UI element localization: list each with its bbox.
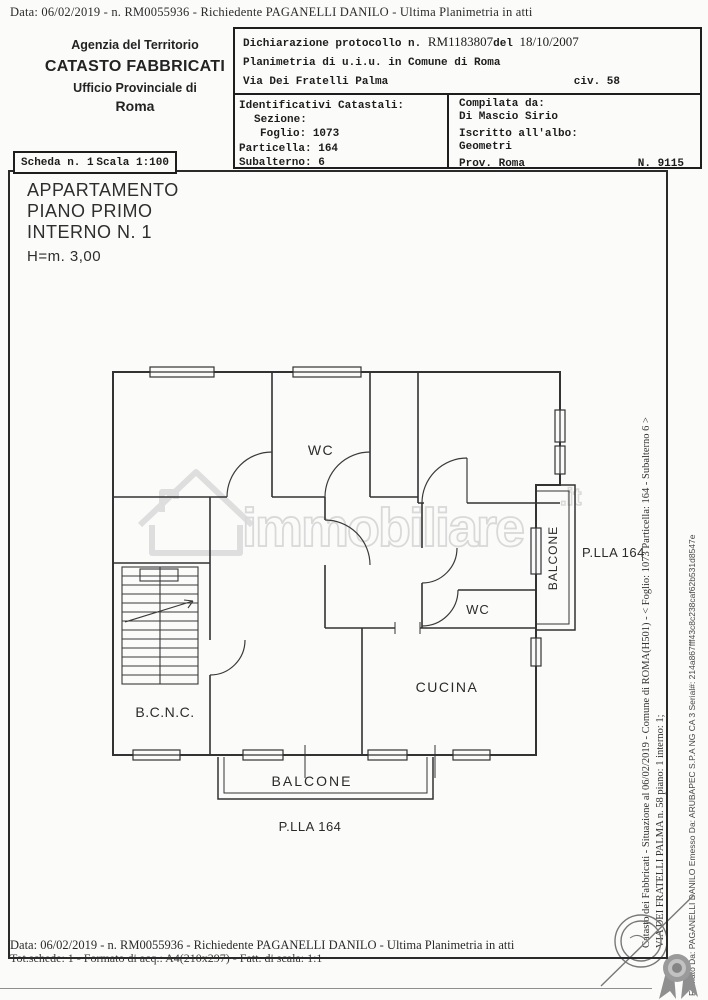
signature-texts: Catasto dei Fabbricati - Situazione al 0…: [641, 417, 697, 996]
watermark: immobiliare .it: [140, 472, 581, 558]
door-arc: [325, 452, 370, 497]
door-arc: [227, 452, 272, 497]
room-label-cucina: CUCINA: [416, 679, 479, 695]
door-arc: [210, 640, 245, 675]
scheda-number: Scheda n. 1: [21, 157, 94, 169]
upper-room-walls: [272, 372, 418, 503]
watermark-brand-text: immobiliare: [242, 498, 524, 558]
signature-firmato: Firmato Da: PAGANELLI DANILO Emesso Da: …: [687, 534, 697, 996]
watermark-house-icon: [140, 472, 252, 553]
scale-value: Scala 1:100: [96, 157, 169, 169]
parcel-label-right: P.LLA 164: [582, 545, 645, 560]
watermark-tld-text: .it: [560, 484, 581, 511]
kitchen-door-jambs: [395, 622, 420, 634]
bottom-bar-line2: Tot.schede: 1 - Formato di acq.: A4(210x…: [10, 951, 322, 966]
signature-catasto-line2: VIA DEI FRATELLI PALMA n. 58 piano: 1 in…: [655, 714, 666, 948]
room-label-balcone-bottom: BALCONE: [272, 773, 353, 789]
door-arc: [422, 458, 467, 503]
door-arc: [422, 590, 458, 626]
room-label-balcone-right: BALCONE: [546, 526, 560, 590]
parcel-label-bottom: P.LLA 164: [279, 819, 342, 834]
room-label-bcnc: B.C.N.C.: [135, 704, 194, 720]
room-label-wc-bottom: WC: [466, 602, 490, 617]
scheda-box: Scheda n. 1 Scala 1:100: [13, 151, 177, 174]
room-label-wc-top: WC: [308, 442, 334, 458]
stair-landing: [140, 569, 178, 581]
signature-catasto-line1: Catasto dei Fabbricati - Situazione al 0…: [641, 417, 652, 948]
floor-plan-drawing: immobiliare .it: [0, 0, 708, 1000]
staircase: [122, 567, 198, 684]
door-arcs: [210, 452, 467, 675]
